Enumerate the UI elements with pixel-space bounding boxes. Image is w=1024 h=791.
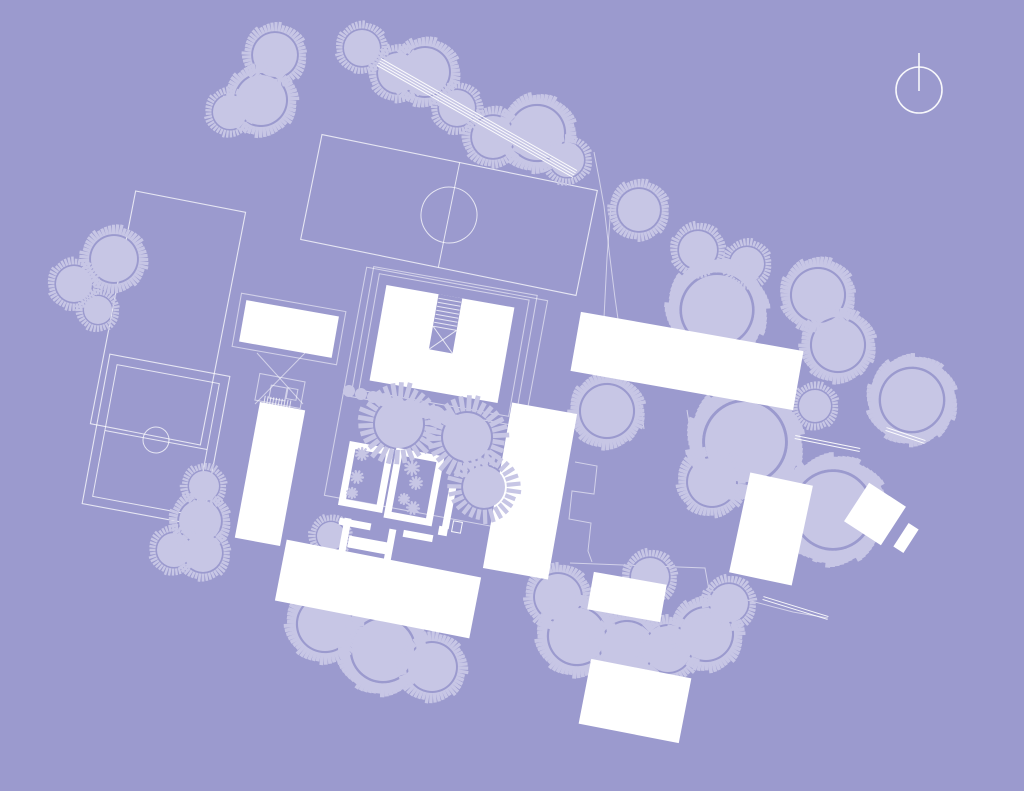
bush-symbol (355, 388, 367, 400)
site-plan (0, 0, 1024, 791)
plant-symbol (410, 477, 422, 489)
plant-symbol (399, 494, 409, 504)
plant-symbol (347, 488, 357, 498)
site-plan-canvas (0, 0, 1024, 791)
bush-symbol (343, 385, 355, 397)
plant-symbol (356, 448, 368, 460)
